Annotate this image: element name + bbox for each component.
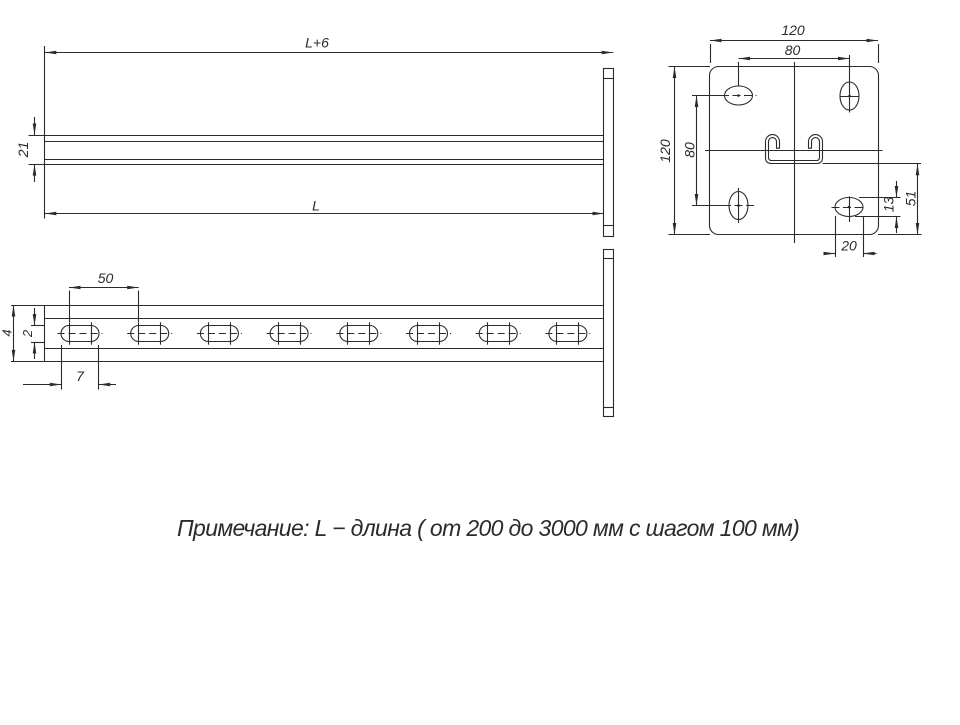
svg-text:Примечание: L − длина ( от 200: Примечание: L − длина ( от 200 до 3000 м…	[177, 515, 801, 541]
svg-text:51: 51	[903, 191, 919, 207]
svg-text:4: 4	[0, 329, 15, 336]
svg-text:120: 120	[781, 22, 805, 38]
svg-text:2: 2	[20, 329, 35, 338]
svg-text:20: 20	[840, 238, 857, 254]
svg-text:21: 21	[15, 142, 31, 159]
svg-text:7: 7	[76, 368, 85, 384]
svg-text:13: 13	[881, 197, 897, 213]
svg-text:50: 50	[98, 270, 114, 286]
svg-text:L+6: L+6	[305, 35, 329, 51]
svg-text:80: 80	[785, 42, 801, 58]
svg-text:120: 120	[657, 139, 673, 163]
svg-text:L: L	[312, 198, 320, 214]
svg-text:80: 80	[682, 142, 698, 158]
